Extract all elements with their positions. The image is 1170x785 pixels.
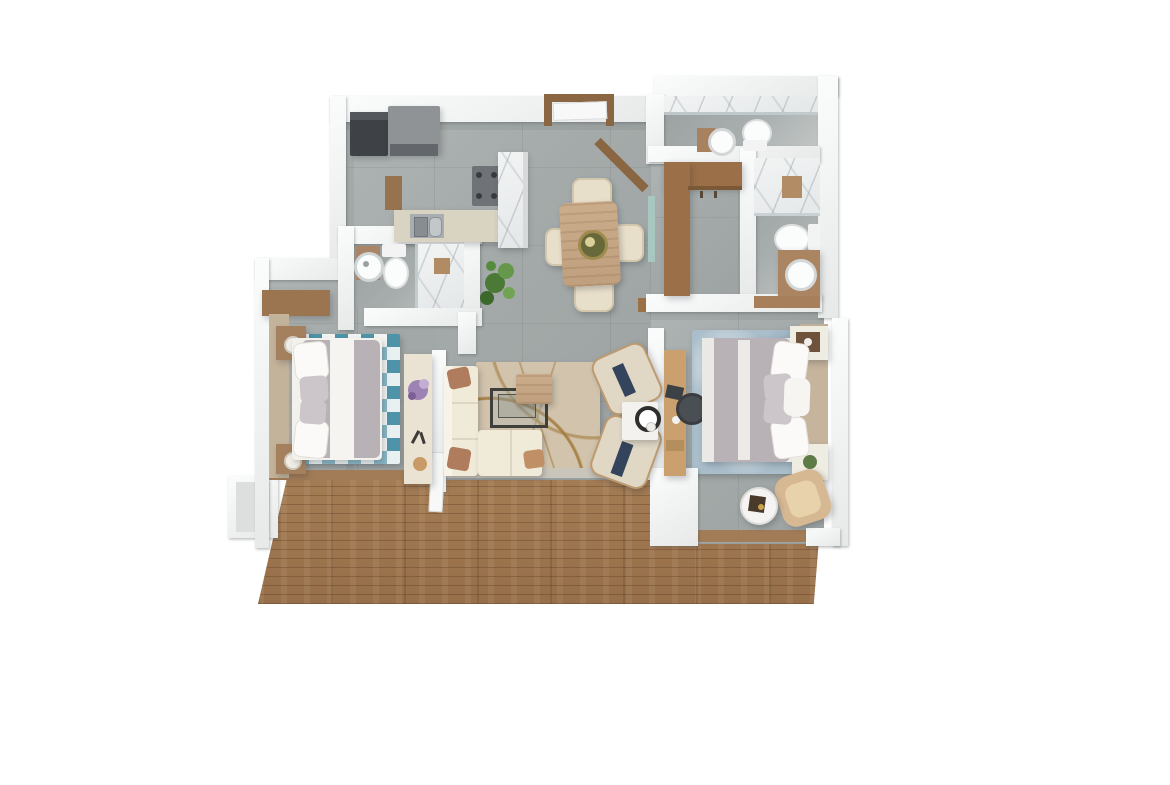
pillow-left-3 — [299, 375, 329, 403]
burner-2 — [491, 172, 497, 178]
ensuite-caddy — [782, 176, 802, 198]
dresser-decor-3 — [413, 457, 427, 471]
wardrobe-rail — [688, 186, 742, 190]
floorplan-scene — [0, 0, 1170, 785]
entry-door-frame-left — [544, 94, 552, 126]
wall-topright-right — [818, 76, 838, 318]
wall-bathroom-small-left — [338, 226, 354, 330]
sofa-seam-2 — [452, 438, 478, 440]
bed-master-foot-fold — [702, 338, 714, 462]
kitchen-sink-basin — [414, 217, 428, 237]
round-table-item — [748, 495, 766, 513]
master-books — [666, 440, 684, 451]
floorplan-canvas — [0, 0, 1170, 785]
bath-small-shower — [418, 244, 464, 308]
kitchen-island-marble — [498, 152, 526, 248]
pillow-rust-2 — [446, 446, 471, 471]
burner-1 — [476, 172, 482, 178]
wall-master-right — [832, 318, 848, 546]
bath-top-toilet-tank — [743, 140, 767, 151]
wall-master-stub-se — [806, 528, 840, 546]
pillow-master-5 — [783, 378, 810, 417]
bath-small-toilet-tank — [382, 244, 406, 257]
ensuite-toilet-tank — [808, 224, 820, 250]
plant-leaf-2 — [498, 263, 514, 279]
burner-3 — [476, 193, 482, 199]
bath-top-glass — [664, 112, 818, 115]
sofa-chaise-seam — [510, 430, 512, 476]
burner-4 — [491, 193, 497, 199]
bath-small-toilet-bowl — [383, 257, 409, 289]
entry-door-leaf — [553, 101, 608, 121]
pillow-left-4 — [299, 399, 327, 425]
sofa-seam-1 — [452, 402, 478, 404]
kitchen-sink-drainer — [429, 217, 442, 237]
kitchen-cabinet-front — [390, 144, 438, 156]
wall-nook-stub — [458, 312, 476, 354]
nightstand-plant — [803, 455, 817, 469]
kitchen-island-side — [523, 152, 528, 248]
wall-shade-master — [650, 312, 824, 320]
bedroom-left-console — [262, 290, 330, 316]
centerpiece-core — [585, 237, 595, 247]
round-table-gold-dot — [758, 504, 764, 510]
kitchen-tall-cabinet — [385, 176, 402, 210]
fridge-top — [350, 112, 388, 120]
pillow-rust-3 — [523, 449, 545, 470]
closet-mirror — [648, 196, 655, 262]
bath-small-shower-glass — [415, 244, 418, 308]
ensuite-shower-glass — [754, 213, 820, 216]
ensuite-sink — [785, 259, 817, 291]
hanger-1 — [700, 191, 703, 198]
flower-purple-2 — [419, 379, 429, 389]
bed-left-runner — [330, 338, 354, 460]
threshold-master — [698, 530, 810, 542]
bath-top-sink — [708, 128, 736, 156]
flower-purple-3 — [408, 392, 416, 400]
bath-small-caddy — [434, 258, 450, 274]
bath-small-sink — [354, 252, 384, 282]
bath-top-marble — [664, 96, 818, 112]
ensuite-cabinet-front — [754, 296, 820, 308]
bath-small-sink-drain — [363, 261, 369, 267]
pillow-left-2 — [292, 418, 330, 459]
entry-door-frame-right — [606, 94, 614, 126]
plant-leaf-4 — [503, 287, 515, 299]
side-table-wood-cube — [516, 374, 552, 404]
plant-leaf-3 — [480, 291, 494, 305]
wall-master-block — [650, 468, 698, 546]
hanger-2 — [714, 191, 717, 198]
bed-master-mid-fold — [738, 340, 750, 460]
wall-topright-top — [654, 76, 838, 96]
plant-leaf-5 — [486, 261, 496, 271]
wardrobe-side — [664, 162, 690, 296]
tray-cup — [646, 422, 656, 432]
